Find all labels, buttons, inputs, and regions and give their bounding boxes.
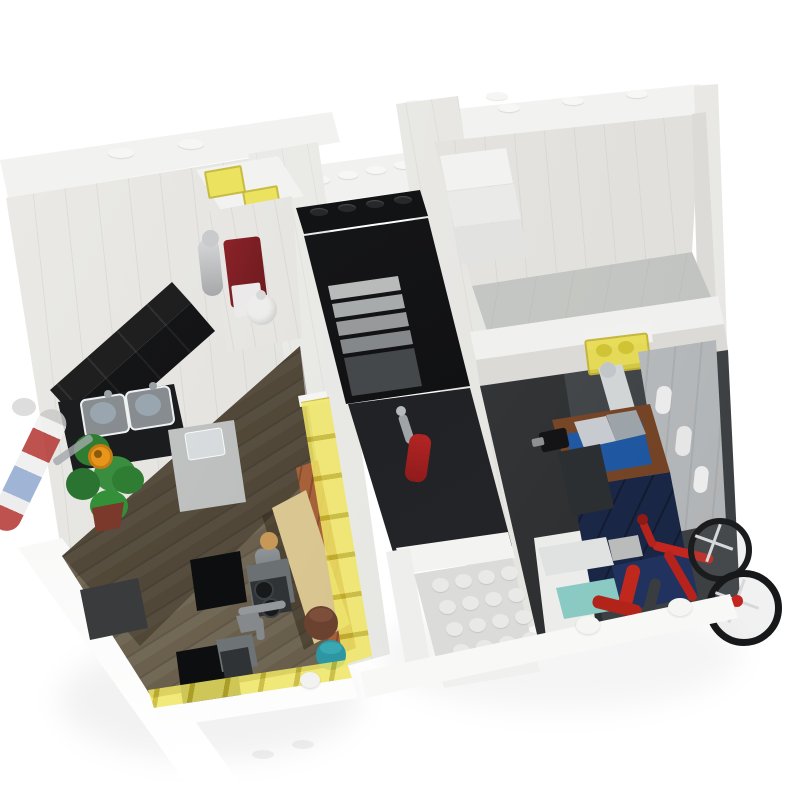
alcove-stud bbox=[446, 622, 463, 636]
alcove-stud bbox=[508, 588, 525, 602]
alcove-stud bbox=[439, 600, 456, 614]
wall-light-stud bbox=[618, 341, 634, 354]
wall-light-stud bbox=[596, 344, 612, 357]
faint-stud bbox=[252, 750, 274, 759]
alcove-stud bbox=[515, 610, 532, 624]
sink-basin bbox=[90, 402, 116, 424]
flower-center bbox=[94, 450, 102, 458]
fire-extinguisher-knob bbox=[396, 406, 406, 416]
alcove-stud bbox=[478, 570, 495, 584]
stair-stud bbox=[338, 204, 356, 212]
faucet bbox=[149, 382, 157, 390]
wall-stud bbox=[108, 148, 134, 158]
wall-stud bbox=[626, 90, 648, 98]
arm-joint bbox=[600, 362, 616, 378]
wall-stud bbox=[486, 92, 508, 100]
plant-leaves bbox=[112, 466, 144, 494]
alcove-stud bbox=[462, 596, 479, 610]
wall-stud bbox=[338, 171, 358, 179]
bike-handle-knob bbox=[637, 514, 648, 525]
stair-stud bbox=[310, 208, 328, 216]
wall-stud bbox=[366, 166, 386, 174]
stair-stud bbox=[366, 200, 384, 208]
alcove-stud bbox=[485, 592, 502, 606]
stair-stud bbox=[394, 196, 412, 204]
statue-head bbox=[202, 230, 219, 247]
sink-basin bbox=[135, 394, 161, 416]
chair-cushion-hole bbox=[254, 580, 274, 600]
front-wall-stud bbox=[668, 598, 692, 616]
wall-stud bbox=[178, 139, 204, 149]
wall-stud bbox=[562, 97, 584, 105]
alcove-stud bbox=[455, 574, 472, 588]
alcove-stud bbox=[492, 614, 509, 628]
cart-clear-tile bbox=[184, 427, 226, 461]
barber-pole-cap bbox=[12, 398, 36, 416]
brown-barrel-top bbox=[309, 608, 333, 622]
alcove-stud bbox=[501, 566, 518, 580]
lego-moc-interior-render bbox=[0, 0, 800, 800]
barber-minifig-head bbox=[260, 532, 278, 550]
alcove-stud bbox=[432, 578, 449, 592]
front-wall-stud bbox=[300, 672, 320, 688]
wall-stud bbox=[498, 104, 520, 112]
teapot-lid bbox=[256, 290, 266, 300]
faucet bbox=[104, 390, 112, 398]
front-wall-stud bbox=[576, 616, 600, 634]
teal-bin-top bbox=[320, 642, 342, 654]
alcove-stud bbox=[469, 618, 486, 632]
faint-stud bbox=[292, 740, 314, 749]
